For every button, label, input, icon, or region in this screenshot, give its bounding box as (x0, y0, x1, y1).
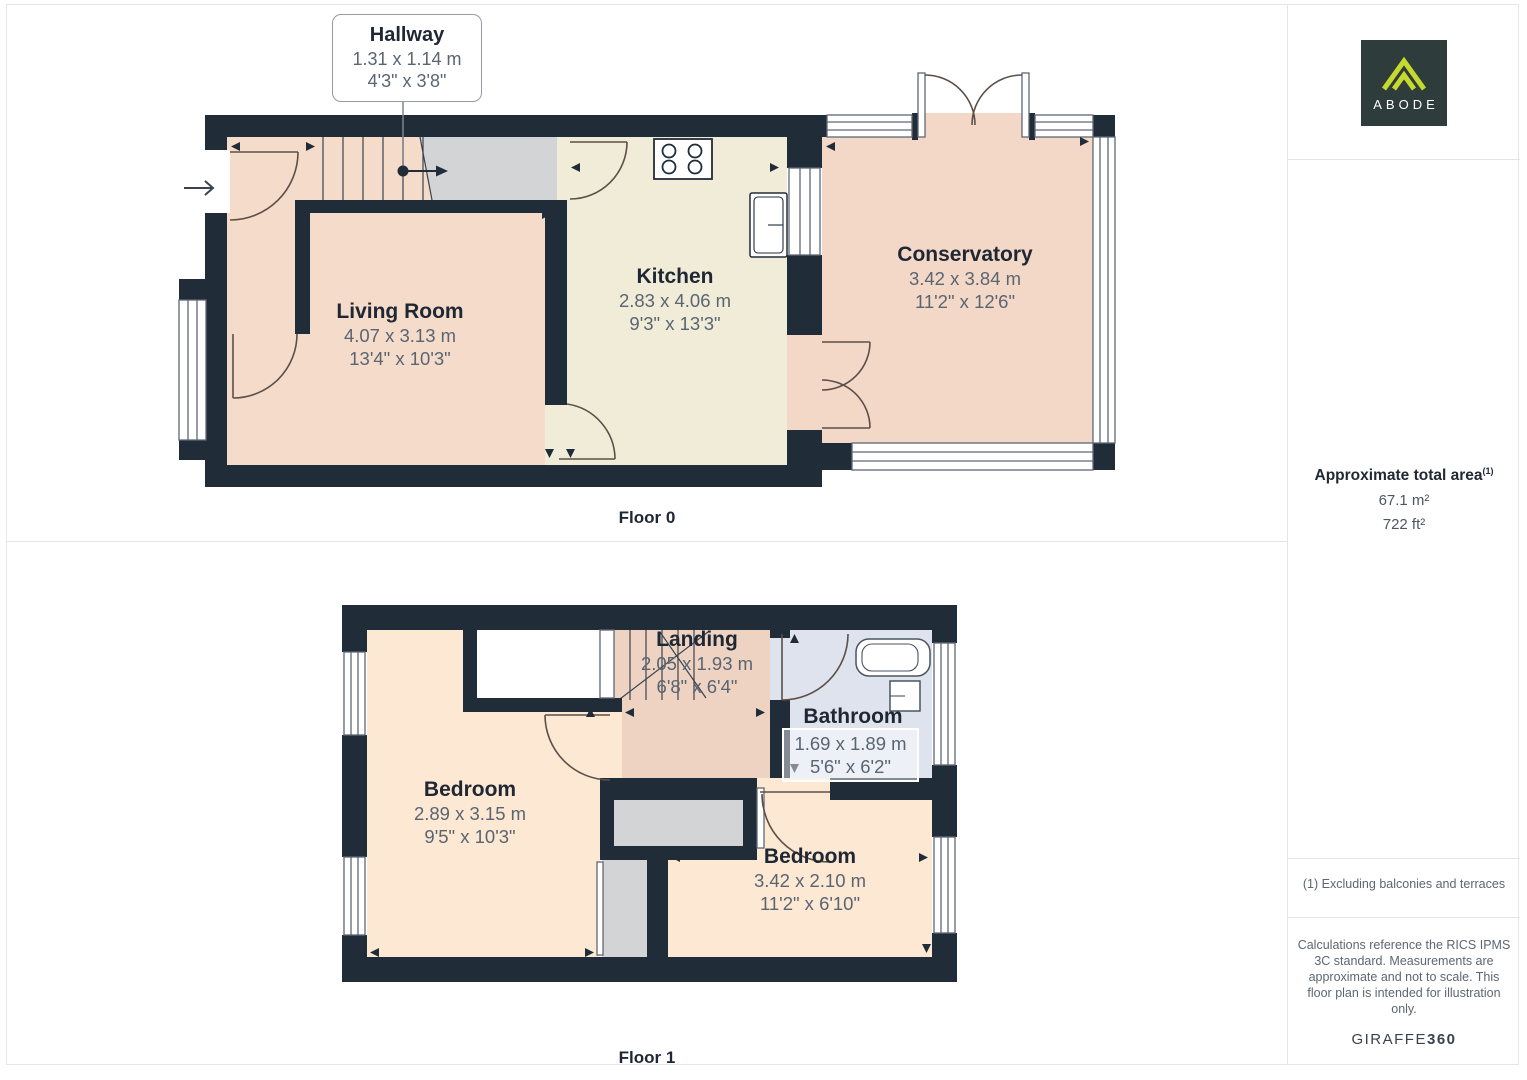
sidebar: ABODE Approximate total area(1) 67.1 m² … (1287, 5, 1520, 1065)
logo-wordmark: ABODE (1369, 97, 1439, 112)
floor1-plan-svg (7, 542, 1287, 1066)
total-area-label: Approximate total area(1) (1288, 466, 1520, 485)
plan-area: Hallway 1.31 x 1.14 m 4'3" x 3'8" Living… (7, 5, 1287, 1066)
room-name: Hallway (335, 22, 479, 48)
room-dim-metric: 2.83 x 4.06 m (619, 289, 731, 312)
room-label-landing: Landing 2.05 x 1.93 m 6'8" x 6'4" (641, 627, 753, 698)
room-dim-metric: 4.07 x 3.13 m (336, 324, 463, 347)
room-name: Bathroom (803, 704, 902, 729)
stove-icon (654, 139, 712, 179)
floor0-section: Hallway 1.31 x 1.14 m 4'3" x 3'8" Living… (7, 5, 1287, 541)
room-dim-imperial: 9'5" x 10'3" (414, 825, 526, 848)
room-name: Bedroom (754, 844, 866, 869)
entry-arrow-icon (184, 181, 213, 195)
floor0-label: Floor 0 (619, 508, 676, 528)
abode-chevron-icon (1378, 55, 1430, 91)
room-label-kitchen: Kitchen 2.83 x 4.06 m 9'3" x 13'3" (619, 264, 731, 335)
abode-logo: ABODE (1361, 40, 1447, 126)
room-name: Kitchen (619, 264, 731, 289)
sidebar-divider (1288, 858, 1520, 859)
room-dim-imperial: 6'8" x 6'4" (641, 675, 753, 698)
room-dim-metric: 1.69 x 1.89 m (784, 732, 917, 755)
sink-icon (750, 193, 787, 257)
bathtub-icon (856, 639, 930, 676)
giraffe360-credit: GIRAFFE360 (1288, 1031, 1520, 1048)
room-dim-metric: 3.42 x 2.10 m (754, 869, 866, 892)
hallway-callout: Hallway 1.31 x 1.14 m 4'3" x 3'8" (332, 14, 482, 102)
total-area-imperial: 722 ft² (1288, 516, 1520, 533)
floorplan-page: Hallway 1.31 x 1.14 m 4'3" x 3'8" Living… (0, 0, 1527, 1080)
room-dim-imperial: 4'3" x 3'8" (335, 70, 479, 92)
room-dim-metric: 2.05 x 1.93 m (641, 652, 753, 675)
room-name: Bedroom (414, 777, 526, 802)
sidebar-divider (1288, 917, 1520, 918)
room-label-bathroom: Bathroom (803, 704, 902, 729)
room-dim-imperial: 9'3" x 13'3" (619, 312, 731, 335)
room-dim-imperial: 11'2" x 12'6" (897, 290, 1032, 313)
room-label-living-room: Living Room 4.07 x 3.13 m 13'4" x 10'3" (336, 299, 463, 370)
room-dim-imperial: 13'4" x 10'3" (336, 347, 463, 370)
disclaimer-text: Calculations reference the RICS IPMS 3C … (1296, 938, 1512, 1017)
total-area-block: Approximate total area(1) 67.1 m² 722 ft… (1288, 466, 1520, 533)
total-area-metric: 67.1 m² (1288, 492, 1520, 509)
room-name: Landing (641, 627, 753, 652)
area-footnote: (1) Excluding balconies and terraces (1288, 877, 1520, 891)
sidebar-divider (1288, 159, 1520, 160)
floor1-label: Floor 1 (619, 1048, 676, 1068)
floor1-section: Landing 2.05 x 1.93 m 6'8" x 6'4" Bathro… (7, 542, 1287, 1066)
room-label-bedroom-left: Bedroom 2.89 x 3.15 m 9'5" x 10'3" (414, 777, 526, 848)
footnote-marker: (1) (1482, 466, 1493, 476)
room-label-bedroom-right: Bedroom 3.42 x 2.10 m 11'2" x 6'10" (754, 844, 866, 915)
room-name: Conservatory (897, 242, 1032, 267)
room-dim-metric: 1.31 x 1.14 m (335, 48, 479, 70)
room-dim-imperial: 11'2" x 6'10" (754, 892, 866, 915)
room-label-conservatory: Conservatory 3.42 x 3.84 m 11'2" x 12'6" (897, 242, 1032, 313)
room-dim-metric: 3.42 x 3.84 m (897, 267, 1032, 290)
bathroom-dims-box: 1.69 x 1.89 m 5'6" x 6'2" (782, 728, 919, 782)
room-dim-imperial: 5'6" x 6'2" (784, 755, 917, 778)
room-name: Living Room (336, 299, 463, 324)
room-dim-metric: 2.89 x 3.15 m (414, 802, 526, 825)
